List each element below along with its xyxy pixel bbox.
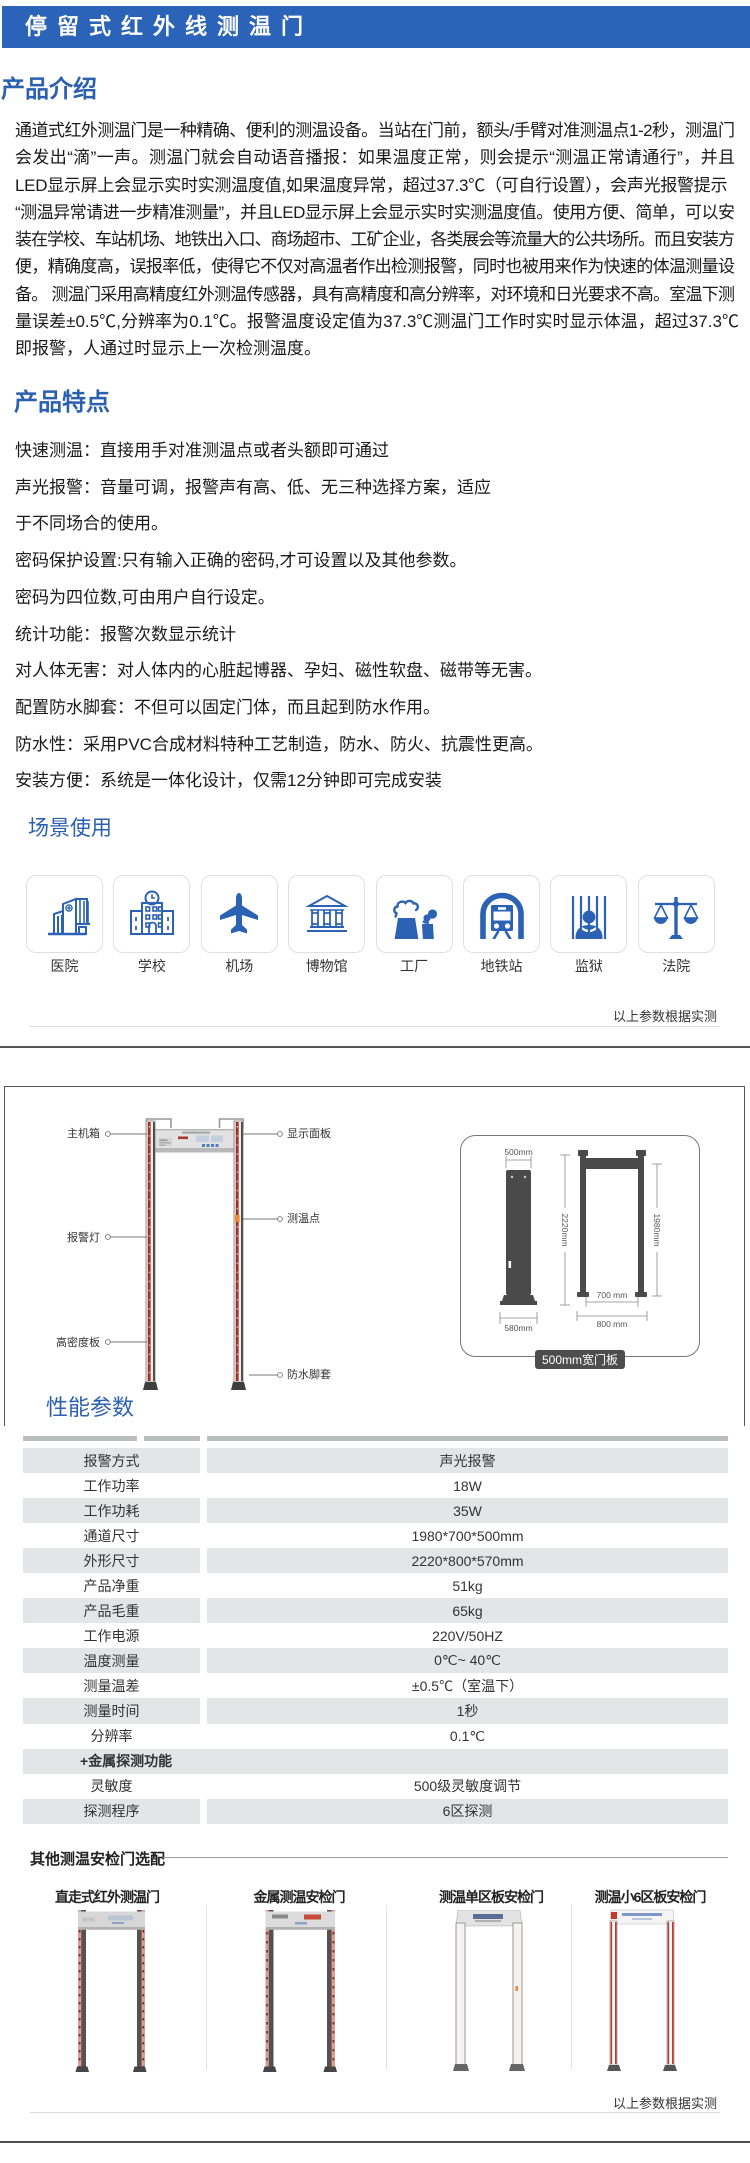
svg-text:700 mm: 700 mm — [597, 1290, 628, 1300]
svg-text:580mm: 580mm — [504, 1323, 532, 1333]
svg-text:2220mm: 2220mm — [560, 1213, 570, 1246]
svg-text:1980mm: 1980mm — [652, 1213, 662, 1246]
svg-text:800 mm: 800 mm — [597, 1319, 628, 1329]
svg-text:500mm: 500mm — [504, 1147, 532, 1157]
